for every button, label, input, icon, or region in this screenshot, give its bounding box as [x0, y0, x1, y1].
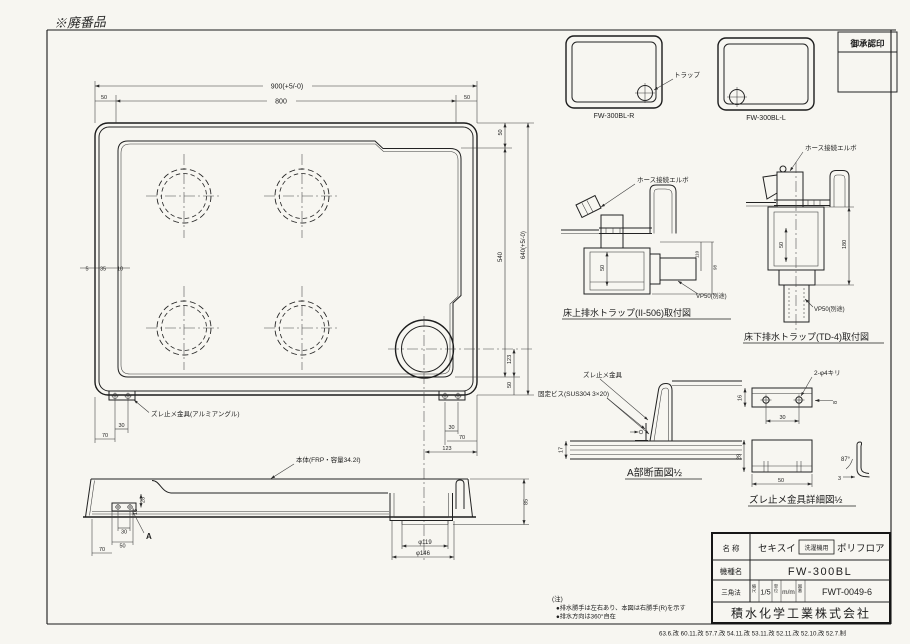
drawing-canvas: ※廃番品 御承認印 FW-300BL-R トラップ FW-300BL-L	[0, 0, 910, 644]
trap-callout: トラップ	[674, 71, 701, 79]
plan-view	[95, 123, 534, 560]
dim-98-floor-trap: 98	[713, 264, 718, 270]
section-a-caption: A部断面図½	[627, 466, 683, 479]
dim-28-side: 28	[141, 497, 147, 503]
dim-900: 900(+5/-0)	[271, 84, 304, 91]
revision-history: 63.6.改 60.11.改 57.7.改 54.11.改 53.11.改 52…	[659, 630, 846, 638]
section-bracket-callout: ズレ止メ金具	[583, 370, 623, 379]
dim-50-rim: 50	[498, 129, 504, 135]
dim-123-horiz: 123	[442, 446, 451, 452]
usage-badge: 洗濯機用	[804, 544, 828, 552]
vp50-label-under: VP50(別途)	[814, 305, 845, 313]
dim-50-side: 50	[119, 544, 125, 550]
approval-box: 御承認印	[838, 32, 897, 92]
dim-35: 35	[100, 267, 106, 273]
under-trap-caption: 床下排水トラップ(TD-4)取付図	[744, 331, 869, 342]
section-a-detail: ズレ止メ金具 固定ビス(SUS304 3×20) 17 A部断面図½	[538, 370, 742, 479]
thumb-r-label: FW-300BL-R	[594, 113, 635, 120]
foot-circle-2	[264, 154, 340, 238]
dim-540: 540	[498, 251, 504, 262]
notes-head: (注)	[552, 594, 563, 603]
side-view: 本体(FRP・容量34.2ℓ) 30 50 70 28 16 A 85 φ119…	[83, 455, 530, 560]
product-text: ポリフロア	[837, 544, 885, 555]
dim-10: 10	[117, 267, 123, 273]
dim-800: 800	[275, 99, 287, 106]
vp50-label-floor: VP50(別途)	[696, 292, 727, 300]
thumbnail-left-hand: FW-300BL-L	[718, 38, 814, 122]
dim-50-right: 50	[464, 95, 470, 101]
foot-circle-4	[264, 286, 340, 370]
company-name: 積水化学工業株式会社	[731, 606, 871, 621]
thumbnail-right-hand: FW-300BL-R	[566, 36, 662, 120]
dim-30-right-bracket: 30	[448, 425, 454, 431]
bracket-detail-caption: ズレ止メ金具詳細図½	[749, 494, 843, 506]
dim-50-bottom: 50	[507, 382, 513, 388]
section-screw-callout: 固定ビス(SUS304 3×20)	[538, 389, 609, 398]
model-number: FW-300BL	[788, 566, 852, 578]
unit-label: 単位	[774, 583, 779, 593]
floor-trap-caption: 床上排水トラップ(II-506)取付図	[563, 307, 691, 318]
dim-70-left-bracket: 70	[102, 433, 108, 439]
dim-70-right-bracket: 70	[459, 435, 465, 441]
dim-30-left-bracket: 30	[118, 423, 124, 429]
foot-circle-1	[146, 154, 222, 238]
brand-text: セキスイ	[758, 544, 796, 555]
body-callout: 本体(FRP・容量34.2ℓ)	[296, 455, 361, 464]
dim-50-under-trap: 50	[779, 242, 785, 248]
dim-640: 640(+5/-0)	[521, 231, 527, 259]
notes-line-1: ●排水勝手は左右あり、本図は右勝手(R)を示す	[556, 604, 686, 612]
foot-circle-3	[146, 286, 222, 370]
bracket-detail: 16 30 8 2-φ4キリ 28 50 87° 3 ズレ止メ金具詳細図½	[737, 370, 870, 506]
title-block: 名 称 セキスイ 洗濯機用 ポリフロア 機種名 FW-300BL 三角法 縮尺 …	[712, 533, 890, 623]
dim-8-bracket: 8	[833, 401, 839, 404]
dim-70-side: 70	[99, 547, 105, 553]
dim-d146: φ146	[416, 551, 431, 557]
dim-30-side: 30	[121, 530, 127, 536]
elbow-callout-floor: ホース接続エルボ	[637, 175, 689, 184]
plan-dimensions: 900(+5/-0) 800 50 50 50 540 640(+5/-0) 1…	[80, 81, 534, 456]
dim-180-under-trap: 180	[842, 240, 848, 249]
dim-16-bracket: 16	[738, 395, 744, 401]
dim-5: 5	[85, 267, 88, 273]
thumb-l-label: FW-300BL-L	[746, 115, 786, 122]
section-marker-a: A	[146, 532, 152, 541]
angle-87: 87°	[841, 457, 851, 463]
bracket-callout: ズレ止メ金具(アルミアングル)	[151, 409, 240, 418]
model-label: 機種名	[720, 566, 743, 576]
name-label: 名 称	[722, 543, 740, 553]
notes-line-2: ●排水方向は360°自在	[556, 613, 616, 621]
dim-123-vert: 123	[507, 355, 513, 364]
dwg-number: FWT-0049-6	[822, 587, 872, 597]
elbow-callout-under: ホース接続エルボ	[805, 143, 857, 152]
drawing-sheet: ※廃番品 御承認印 FW-300BL-R トラップ FW-300BL-L	[0, 0, 910, 644]
dim-28-bracket: 28	[737, 454, 743, 460]
dim-30-bracket: 30	[779, 415, 785, 421]
dim-17-section: 17	[559, 447, 565, 453]
approval-label: 御承認印	[849, 39, 884, 49]
dim-d119: φ119	[418, 540, 432, 546]
dim-110-floor-trap: 110	[695, 250, 700, 258]
dwg-no-label: 図番	[797, 584, 803, 594]
holes-callout: 2-φ4キリ	[814, 370, 841, 377]
trap-leader	[654, 79, 673, 90]
unit-value: m/m	[782, 589, 795, 596]
dim-85: 85	[524, 499, 530, 505]
floor-trap-detail: 50 VP50(別途) 110 98 ホース接続エルボ 床上排水トラップ(II-…	[561, 175, 731, 319]
scale-label: 縮尺	[752, 583, 757, 594]
projection-label: 三角法	[721, 588, 741, 597]
dim-50-floor-trap: 50	[600, 265, 606, 271]
handwritten-note: ※廃番品	[54, 14, 107, 31]
dim-3-bracket: 3	[838, 476, 841, 482]
scale-value: 1/5	[760, 588, 770, 597]
notes-block: (注) ●排水勝手は左右あり、本図は右勝手(R)を示す ●排水方向は360°自在	[552, 594, 686, 621]
drain-trap	[396, 320, 454, 378]
under-trap-detail: 50 180 VP50(別途) ホース接続エルボ 床下排水トラップ(TD-4)取…	[743, 143, 884, 343]
dim-50-left: 50	[101, 95, 107, 101]
dim-50-bracket: 50	[778, 478, 784, 484]
